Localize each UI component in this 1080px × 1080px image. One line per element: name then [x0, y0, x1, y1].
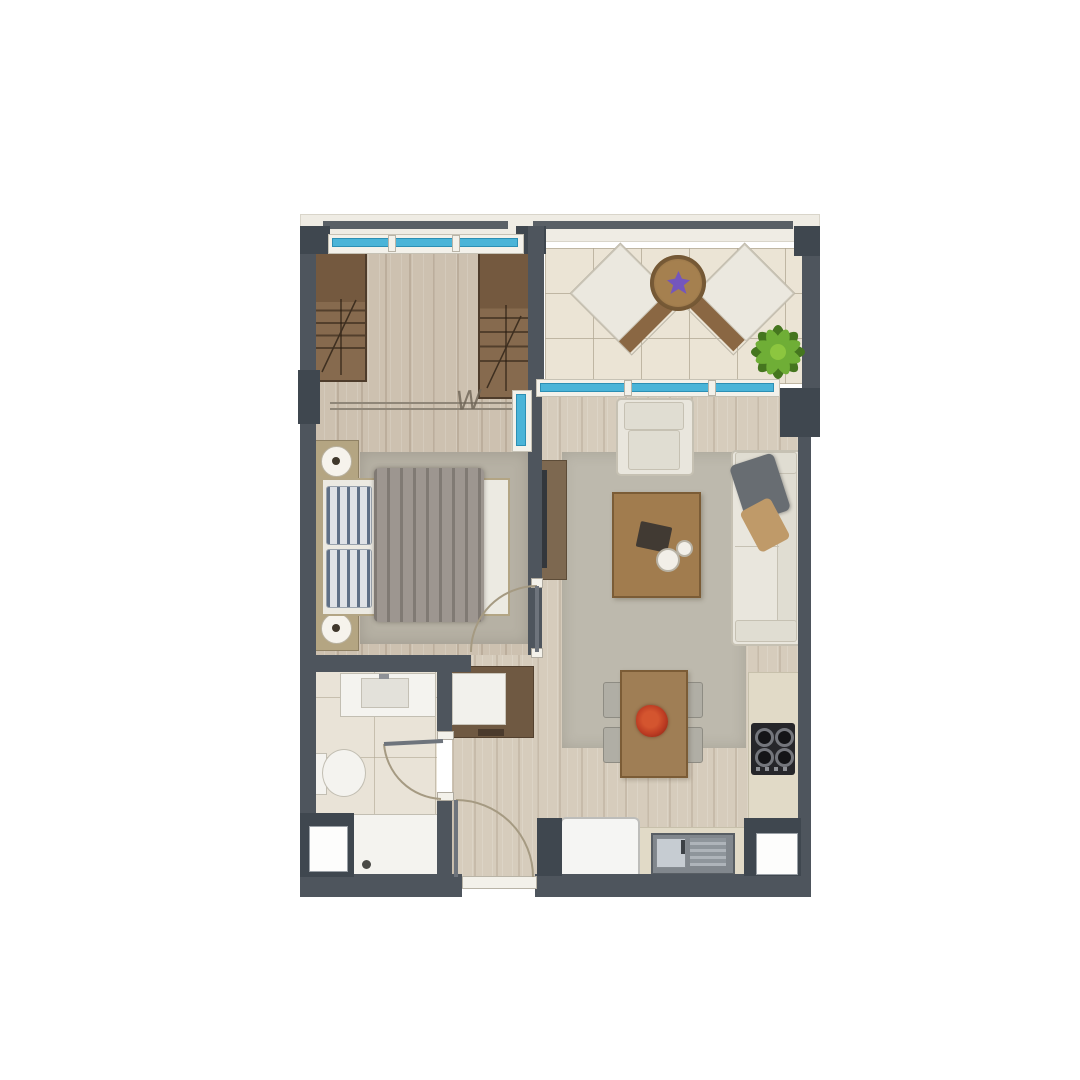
- shaft-bottom-left: [309, 826, 348, 872]
- wall-bedroom-balcony: [528, 226, 544, 392]
- fridge: [560, 817, 640, 880]
- cup-small-icon: [676, 540, 693, 557]
- cooktop-knobs: [756, 767, 788, 771]
- balcony-window-mullion-1: [624, 380, 632, 396]
- shaft-bottom-right: [756, 833, 798, 875]
- wardrobe-right: [478, 252, 532, 399]
- washer-symbol: W: [455, 385, 485, 417]
- wall-column-right: [780, 388, 820, 437]
- bathroom-door-jamb-top: [437, 731, 454, 740]
- centerpiece-flowers-icon: [636, 705, 668, 737]
- wall-corner-top-right: [794, 226, 820, 256]
- vanity-faucet-icon: [379, 674, 389, 679]
- wall-bottom-left: [300, 874, 462, 897]
- lamp-top-dot: [332, 457, 340, 465]
- wall-bathroom-right-lower: [437, 798, 452, 878]
- bathroom-door-jamb-bottom: [437, 792, 454, 801]
- wall-left-pier: [298, 370, 320, 424]
- bedroom-side-window-glass: [516, 394, 526, 446]
- sofa-armrest-bottom: [735, 620, 797, 642]
- floorplan-canvas: W: [0, 0, 1080, 1080]
- bedroom-window-glass: [332, 238, 518, 247]
- lamp-bottom-dot: [332, 624, 340, 632]
- bedroom-door-jamb-bottom: [531, 648, 543, 658]
- armchair-back-cushion: [624, 402, 684, 430]
- entry-cabinet-door: [452, 673, 506, 725]
- wall-corner-top-left: [300, 226, 330, 254]
- armchair-seat-cushion: [628, 430, 680, 470]
- bedroom-window-mullion-2: [452, 235, 460, 252]
- wall-right: [798, 437, 811, 878]
- bed-foot-line: [498, 482, 504, 608]
- dressing-divider-line-2: [330, 408, 520, 410]
- vanity-basin: [361, 678, 409, 708]
- wall-left: [300, 228, 316, 878]
- entry-cabinet-handle: [478, 729, 504, 736]
- shower-drain-icon: [362, 860, 371, 869]
- burner-4-icon: [775, 748, 794, 767]
- balcony-window-mullion-2: [708, 380, 716, 396]
- wardrobe-left: [313, 252, 367, 382]
- entrance-threshold: [462, 876, 537, 889]
- burner-1-icon: [755, 728, 774, 747]
- bed-pillow-1: [326, 486, 372, 545]
- parapet-rail-left: [323, 221, 508, 229]
- sink-drainboard: [690, 838, 726, 866]
- wall-corner-kitchen-left: [537, 818, 562, 876]
- balcony-window-glass: [540, 383, 774, 392]
- bed-pillow-2: [326, 549, 372, 608]
- toilet: [322, 749, 366, 797]
- burner-2-icon: [775, 728, 794, 747]
- wall-bottom-right: [535, 874, 811, 897]
- burner-3-icon: [755, 748, 774, 767]
- bedroom-window-mullion-1: [388, 235, 396, 252]
- dressing-divider-line-1: [330, 402, 520, 404]
- sink-faucet-icon: [681, 840, 685, 854]
- wall-bathroom-right-upper: [437, 655, 452, 738]
- bed-blanket: [374, 468, 484, 622]
- bedroom-door-jamb-top: [531, 578, 543, 588]
- parapet-rail-right: [533, 221, 793, 229]
